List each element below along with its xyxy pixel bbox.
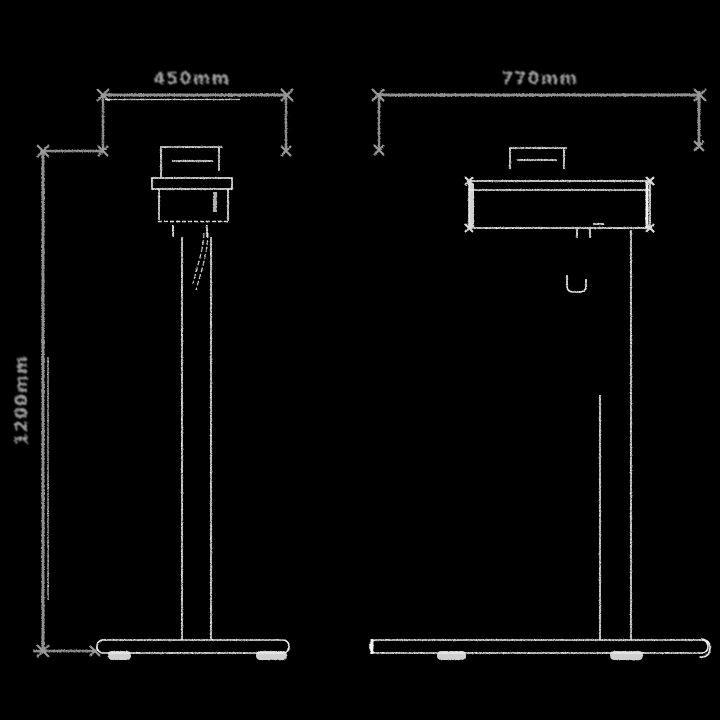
front-mount-box-slot (213, 192, 217, 212)
dimension-labels: 450mm 1200mm 770mm (12, 69, 578, 445)
side-caster-front (437, 651, 466, 660)
front-caster-right (256, 651, 287, 660)
side-product-outline (370, 148, 710, 660)
front-product-outline (97, 147, 289, 660)
diagram-canvas: 450mm 1200mm 770mm (0, 0, 720, 720)
front-width-dimension-label: 450mm (154, 69, 231, 89)
side-depth-dimension-label: 770mm (502, 69, 579, 89)
front-view (33, 89, 293, 660)
side-column-hook (567, 275, 586, 292)
front-support-plate (152, 178, 232, 189)
side-arm-plate (469, 181, 650, 228)
side-arm-plate-front-face (469, 183, 474, 227)
side-caster-rear (610, 651, 643, 660)
front-column-cable-line-1 (193, 233, 204, 284)
dimension-diagram: 450mm 1200mm 770mm (0, 0, 720, 720)
front-column-cable-line-2 (196, 233, 208, 290)
front-caster-left (108, 651, 131, 660)
side-view (370, 89, 710, 660)
front-height-dimension-label: 1200mm (12, 355, 32, 445)
front-dimension-lines (33, 89, 293, 657)
side-base (370, 640, 708, 653)
